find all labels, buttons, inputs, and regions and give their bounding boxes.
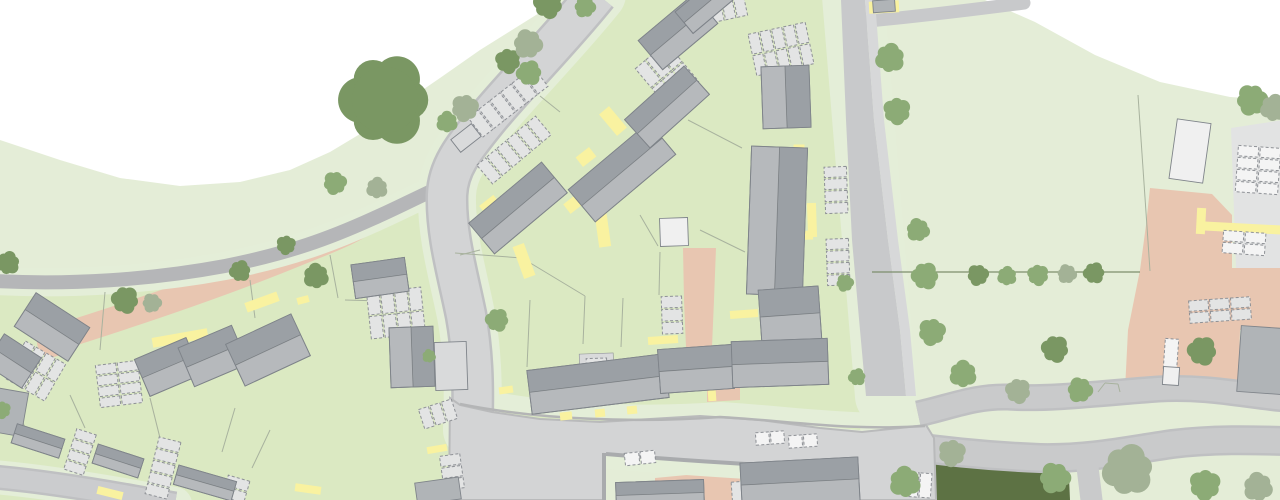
tree-canopy-lobe <box>1240 88 1263 111</box>
building-part <box>774 147 807 296</box>
tree-canopy-lobe <box>115 290 135 310</box>
building <box>1162 366 1179 385</box>
parking-bay <box>919 473 932 498</box>
building-part <box>873 0 896 13</box>
building-part <box>434 341 468 390</box>
parking-bay <box>369 315 384 339</box>
parking-bay <box>662 322 683 334</box>
tree-canopy-lobe <box>279 238 293 252</box>
parking-bay <box>1257 183 1278 195</box>
building <box>658 344 735 393</box>
tree-canopy-lobe <box>851 371 864 384</box>
tree-canopy-lobe <box>1071 381 1090 400</box>
tree-canopy-lobe <box>1060 267 1074 281</box>
site-plan-map <box>0 0 1280 500</box>
parking-bay <box>826 250 849 261</box>
tree-canopy-lobe <box>887 101 907 121</box>
tree-canopy-lobe <box>1045 339 1065 359</box>
tree-canopy-lobe <box>326 174 343 191</box>
tree-canopy-lobe <box>893 470 916 493</box>
tree-canopy-lobe <box>942 443 962 463</box>
parking-bay <box>99 396 120 408</box>
building <box>746 146 807 296</box>
tree-canopy-lobe <box>1247 476 1269 498</box>
parking-bay <box>1210 298 1230 310</box>
tree-canopy-lobe <box>1000 269 1014 283</box>
parking-bay <box>803 434 817 447</box>
tree-canopy-lobe <box>915 266 935 286</box>
parking-bay <box>408 287 423 311</box>
tree-canopy-lobe <box>839 277 852 290</box>
tree-canopy-lobe <box>488 311 505 328</box>
building <box>761 65 811 129</box>
tree-canopy-lobe <box>879 47 901 69</box>
parking-bay <box>97 374 118 386</box>
parking-bay <box>661 296 682 308</box>
parking-bay <box>98 385 119 397</box>
parking-bay <box>1231 309 1251 321</box>
parking-bay <box>120 382 141 394</box>
yellow-path <box>708 389 717 402</box>
parking-bay <box>121 393 142 405</box>
yellow-path <box>1196 208 1206 234</box>
parking-bay <box>825 190 848 201</box>
tree-canopy-lobe <box>352 67 418 133</box>
parking-bay <box>662 309 683 321</box>
parking-bay <box>640 450 656 464</box>
parking-bay <box>1222 242 1243 254</box>
parking-bay <box>1189 312 1209 324</box>
parking-bay <box>1238 145 1259 157</box>
tree-canopy-lobe <box>1009 382 1028 401</box>
building-part <box>785 65 811 128</box>
site-plan-screenshot <box>0 0 1280 500</box>
tree-canopy-lobe <box>1109 451 1146 488</box>
tree-canopy-lobe <box>369 180 385 196</box>
tree-canopy-lobe <box>970 267 986 283</box>
parking-bay <box>827 262 850 273</box>
tree-canopy-lobe <box>1193 473 1216 496</box>
building-part <box>731 338 828 364</box>
parking-bay <box>1230 297 1250 309</box>
parking-bay <box>119 371 140 383</box>
bays-central-col <box>661 296 683 334</box>
parking-bay <box>1189 300 1209 312</box>
parking-bay <box>826 238 849 249</box>
parking-bay <box>1236 169 1257 181</box>
tree-canopy-lobe <box>307 267 326 286</box>
building-part <box>758 286 820 317</box>
building <box>351 257 409 298</box>
parking-bay <box>825 202 848 213</box>
yellow-path <box>807 203 817 237</box>
yellow-path <box>560 411 573 420</box>
tree-canopy-lobe <box>424 351 434 361</box>
building <box>873 0 896 13</box>
building <box>740 457 860 500</box>
parking-bay <box>1258 171 1279 183</box>
tree-canopy-lobe <box>145 296 159 310</box>
bay-salmon-single <box>1163 338 1178 369</box>
parking-bay <box>1245 232 1266 244</box>
building-part <box>660 218 689 247</box>
building <box>434 341 468 390</box>
yellow-path <box>595 408 606 417</box>
parking-bay <box>824 166 847 177</box>
tree-canopy-lobe <box>1043 466 1066 489</box>
parking-bay <box>1163 338 1178 369</box>
parking-bay <box>1223 230 1244 242</box>
tree-canopy-lobe <box>499 52 518 71</box>
parking-bay <box>824 178 847 189</box>
tree-canopy-lobe <box>232 263 248 279</box>
parking-bay <box>788 435 802 448</box>
yellow-path <box>627 405 638 414</box>
building <box>660 218 689 247</box>
tree-canopy-lobe <box>0 254 17 271</box>
tree-canopy-lobe <box>455 98 475 118</box>
parking-bay <box>1259 159 1280 171</box>
building <box>731 338 829 387</box>
salmon-strip-central <box>683 248 716 347</box>
tree-canopy-lobe <box>922 322 942 342</box>
parking-bay <box>755 432 769 445</box>
parking-bay <box>770 431 784 444</box>
tree-canopy-lobe <box>953 364 973 384</box>
parking-bay <box>1210 310 1230 322</box>
building <box>758 286 822 344</box>
parking-bay <box>1244 244 1265 256</box>
parking-bay <box>1260 147 1280 159</box>
tree-canopy-lobe <box>1030 267 1046 283</box>
building <box>1237 326 1280 395</box>
building-part <box>1162 366 1179 385</box>
building-part <box>1237 326 1280 395</box>
tree-canopy-lobe <box>439 114 455 130</box>
tree-canopy-lobe <box>1191 340 1213 362</box>
building <box>616 479 705 500</box>
tree-canopy-lobe <box>517 33 539 55</box>
parking-bay <box>1235 181 1256 193</box>
road-i-spur <box>1086 455 1092 500</box>
tree-canopy-lobe <box>909 221 926 238</box>
tree-canopy-lobe <box>520 64 539 83</box>
parking-bay <box>624 452 640 466</box>
parking-bay <box>1237 157 1258 169</box>
tree-canopy-lobe <box>1086 265 1102 281</box>
parking-bay <box>95 363 116 375</box>
